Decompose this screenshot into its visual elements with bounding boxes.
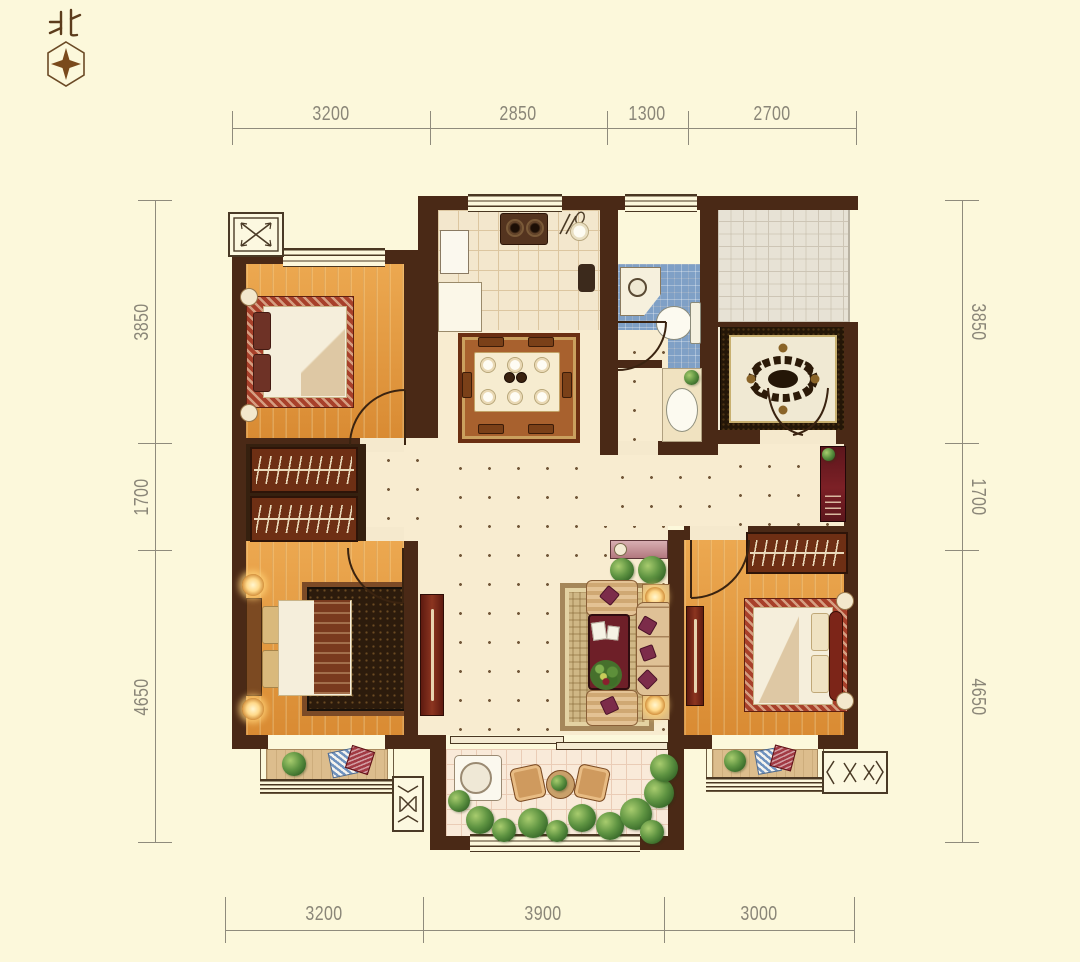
floor-plan-stage: 北 3200 2850 1300 2700 3200 3900 3000 [0, 0, 1080, 962]
door-swing-arcs [0, 0, 1080, 962]
